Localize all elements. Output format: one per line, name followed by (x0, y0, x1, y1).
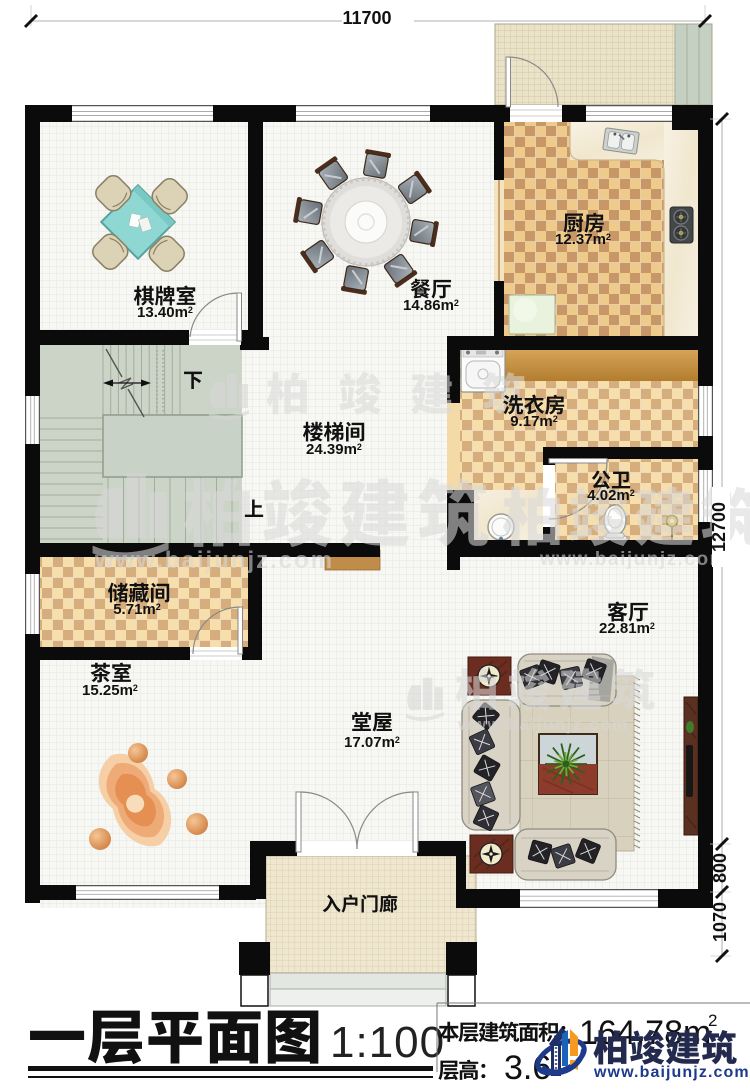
svg-text:24.39m2: 24.39m2 (306, 441, 362, 458)
svg-text:www.baijunjz.com: www.baijunjz.com (539, 549, 728, 570)
svg-text:9.17m2: 9.17m2 (510, 413, 558, 430)
svg-text:13.40m2: 13.40m2 (137, 304, 193, 321)
svg-text:1070: 1070 (710, 902, 730, 942)
svg-text:www.baijunjz.com: www.baijunjz.com (593, 1064, 750, 1081)
svg-text:1:100: 1:100 (330, 1018, 445, 1067)
svg-text:4.02m2: 4.02m2 (587, 487, 635, 504)
svg-text:15.25m2: 15.25m2 (82, 682, 138, 699)
svg-text:www.baijunjz.com: www.baijunjz.com (457, 715, 629, 734)
svg-text:11700: 11700 (342, 8, 391, 28)
svg-text:2: 2 (708, 1011, 717, 1030)
svg-text:www.baijunjz.com: www.baijunjz.com (94, 547, 334, 574)
svg-text:5.71m2: 5.71m2 (113, 601, 161, 618)
svg-text:800: 800 (710, 853, 730, 883)
svg-text:12.37m2: 12.37m2 (555, 231, 611, 248)
svg-text:17.07m2: 17.07m2 (344, 734, 400, 751)
svg-text:14.86m2: 14.86m2 (403, 297, 459, 314)
svg-text:22.81m2: 22.81m2 (599, 620, 655, 637)
svg-text:12700: 12700 (709, 502, 729, 552)
